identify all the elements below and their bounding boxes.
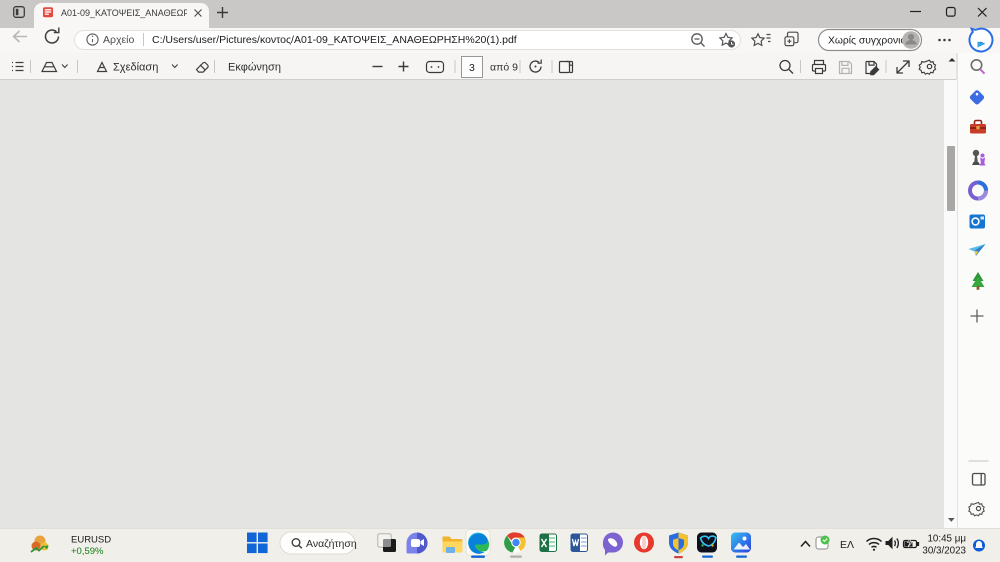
svg-text:Σχεδίαση: Σχεδίαση [113,62,158,74]
svg-text:από 9: από 9 [490,62,518,74]
svg-text:Εκφώνηση: Εκφώνηση [228,62,281,74]
svg-text:30/3/2023: 30/3/2023 [922,546,966,557]
svg-text:10:45 μμ: 10:45 μμ [927,534,966,545]
svg-text:+0,59%: +0,59% [71,546,104,557]
svg-text:ΕΛ: ΕΛ [840,539,854,551]
svg-text:Αναζήτηση: Αναζήτηση [306,538,357,550]
svg-text:3: 3 [469,62,475,74]
svg-text:EURUSD: EURUSD [71,535,111,546]
